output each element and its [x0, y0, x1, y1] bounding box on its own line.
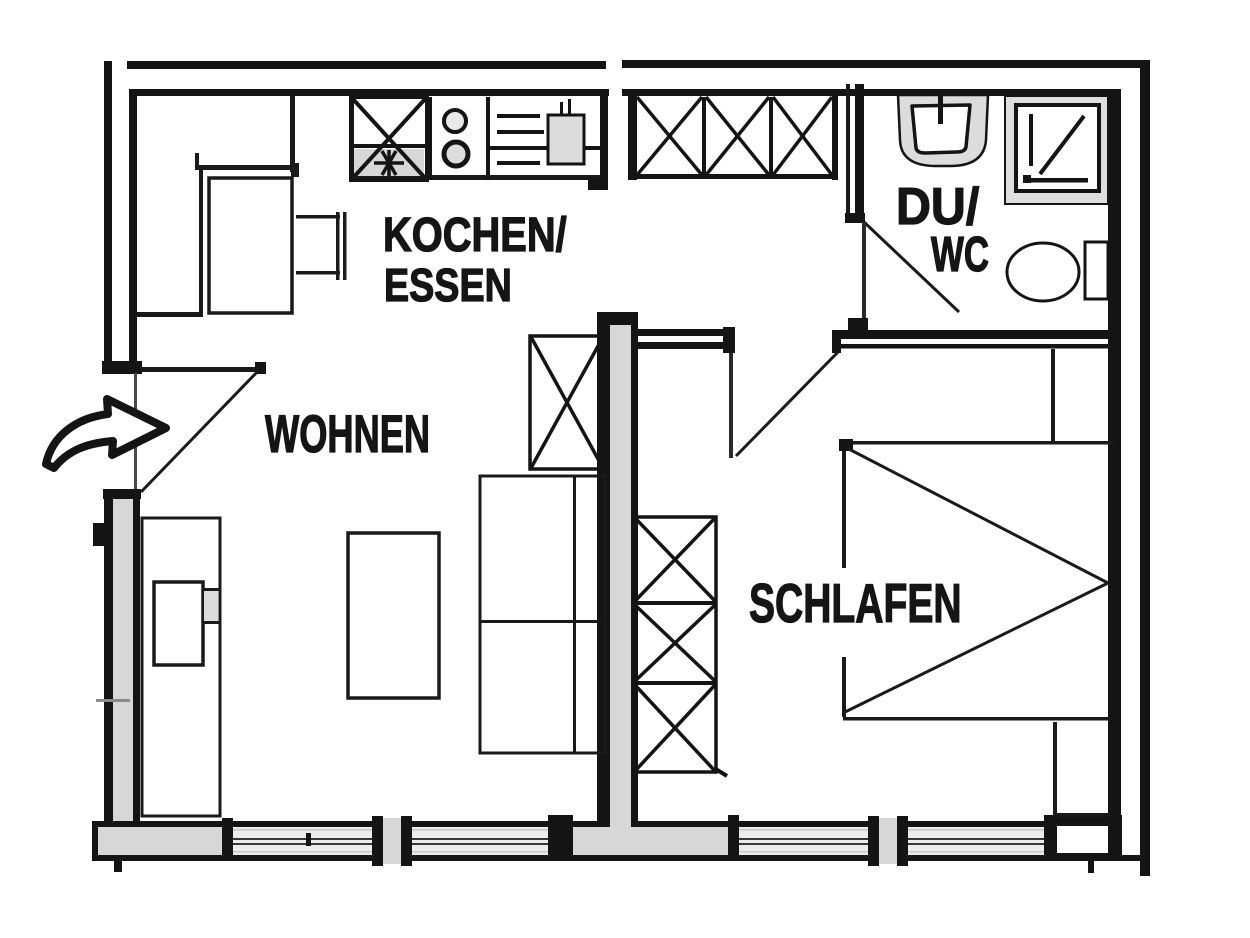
svg-text:DU/: DU/ — [896, 177, 979, 235]
svg-text:SCHLAFEN: SCHLAFEN — [749, 574, 962, 635]
svg-text:KOCHEN/: KOCHEN/ — [383, 209, 567, 262]
svg-text:WOHNEN: WOHNEN — [265, 404, 430, 464]
svg-text:WC: WC — [931, 228, 989, 282]
svg-text:ESSEN: ESSEN — [384, 259, 512, 310]
